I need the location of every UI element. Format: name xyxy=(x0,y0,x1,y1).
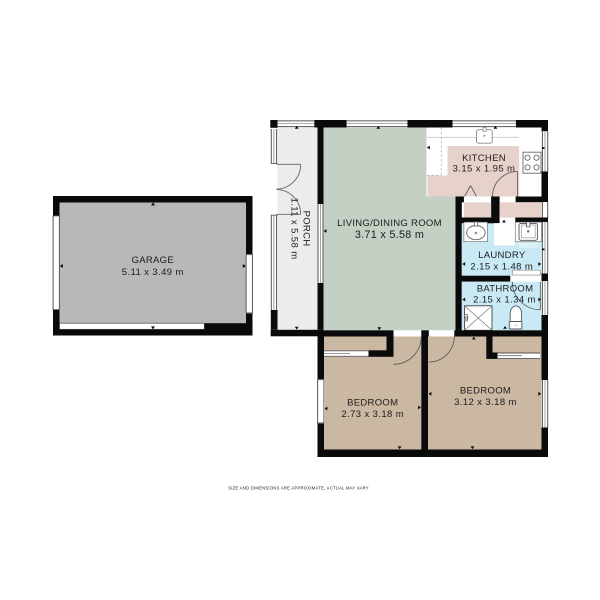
svg-text:LIVING/DINING ROOM: LIVING/DINING ROOM xyxy=(337,218,442,229)
svg-text:2.73 x 3.18 m: 2.73 x 3.18 m xyxy=(341,409,404,420)
svg-text:3.12 x 3.18 m: 3.12 x 3.18 m xyxy=(454,397,517,408)
svg-text:BEDROOM: BEDROOM xyxy=(347,397,398,408)
svg-text:5.11 x 3.49 m: 5.11 x 3.49 m xyxy=(122,267,184,278)
svg-text:1.11 x 5.58 m: 1.11 x 5.58 m xyxy=(289,197,300,259)
svg-text:SIZE AND DIMENSIONS ARE APPROX: SIZE AND DIMENSIONS ARE APPROXIMATE, ACT… xyxy=(228,486,369,491)
svg-text:BATHROOM: BATHROOM xyxy=(477,283,534,294)
svg-text:2.15 x 1.34 m: 2.15 x 1.34 m xyxy=(473,294,536,305)
svg-text:3.15 x 1.95 m: 3.15 x 1.95 m xyxy=(453,163,516,174)
svg-text:LAUNDRY: LAUNDRY xyxy=(478,250,526,261)
svg-text:BEDROOM: BEDROOM xyxy=(460,385,511,396)
svg-text:3.71 x 5.58 m: 3.71 x 5.58 m xyxy=(355,229,424,241)
svg-text:PORCH: PORCH xyxy=(301,211,312,247)
svg-text:GARAGE: GARAGE xyxy=(132,255,174,266)
